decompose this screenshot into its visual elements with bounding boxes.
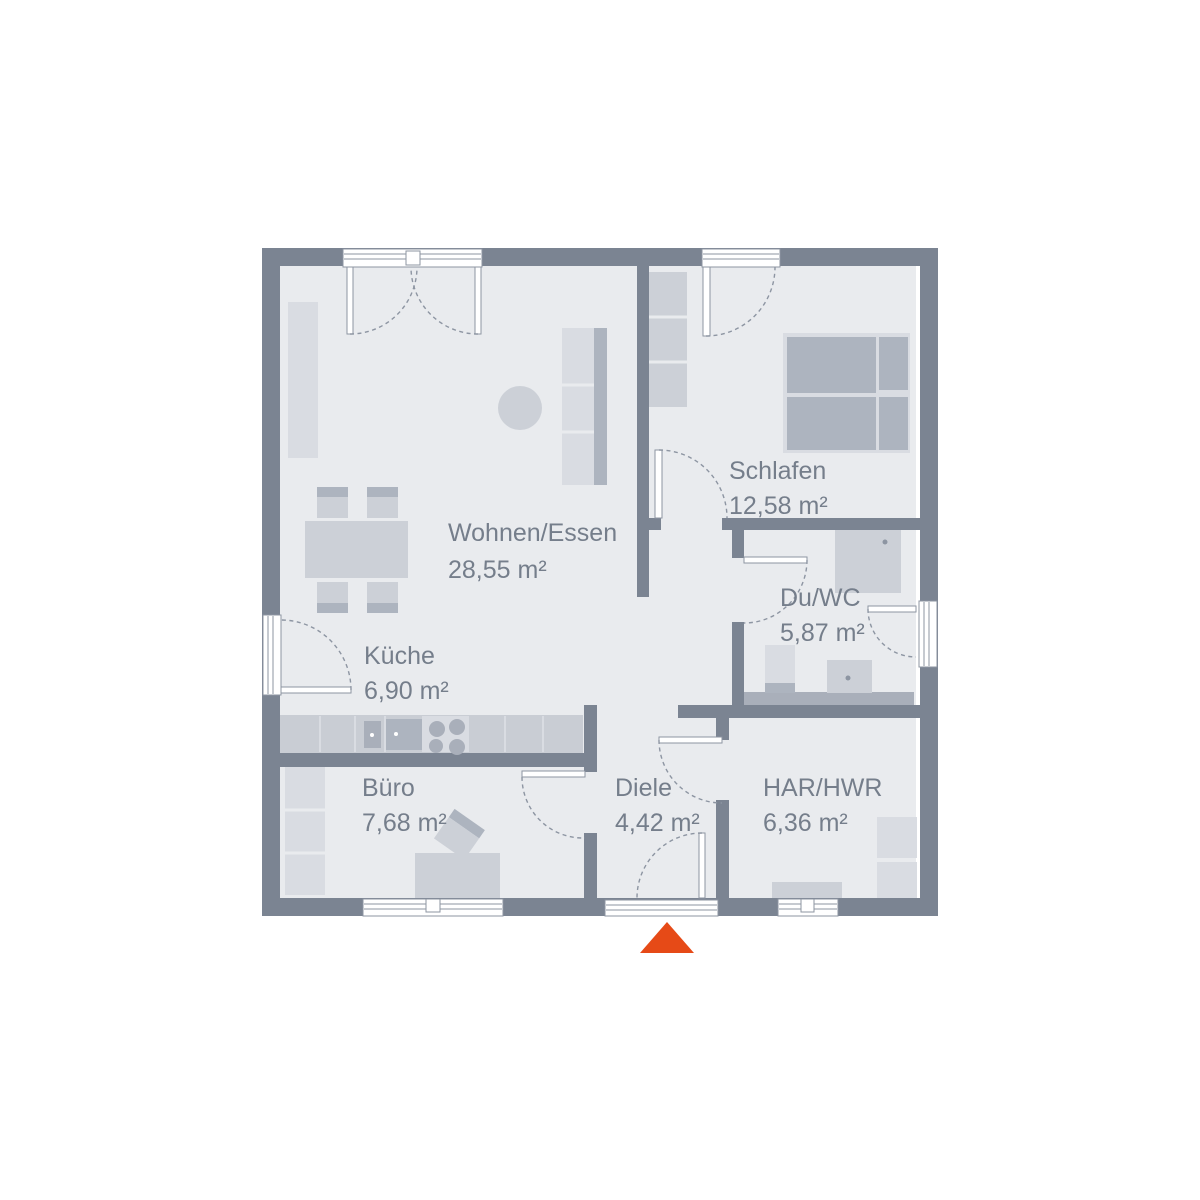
window-buero <box>363 899 503 916</box>
sofa-backrest <box>594 328 607 485</box>
wall-stub-schlafen-door <box>649 518 661 530</box>
vanity-counter <box>744 692 914 705</box>
wall-duwc-har <box>732 705 920 718</box>
wall-wohnen-schlafen <box>637 266 649 597</box>
chair <box>317 487 348 497</box>
room-area-schlafen: 12,58 m² <box>729 492 828 520</box>
door-leaf <box>347 267 353 334</box>
basin-drain <box>846 676 851 681</box>
nightstand <box>879 337 908 390</box>
appliance <box>877 817 917 858</box>
wall-diele-north <box>678 705 732 718</box>
door-handle <box>406 251 420 265</box>
furniture-kueche <box>280 715 583 755</box>
toilet <box>765 645 795 683</box>
appliance <box>877 862 917 898</box>
chair <box>367 487 398 497</box>
door-leaf <box>475 267 481 334</box>
room-label-har-hwr: HAR/HWR <box>763 774 882 802</box>
door-leaf <box>281 687 351 693</box>
burner <box>449 739 465 755</box>
burner <box>449 719 465 735</box>
desk <box>415 853 500 898</box>
kitchen-sink-basin <box>386 719 422 750</box>
room-area-wohnen-essen: 28,55 m² <box>448 556 547 584</box>
door-leaf <box>703 267 710 336</box>
room-label-buero: Büro <box>362 774 415 802</box>
floor-plan-drawing: Wohnen/Essen 28,55 m² Schlafen 12,58 m² … <box>0 0 1200 1200</box>
room-area-kueche: 6,90 m² <box>364 677 449 705</box>
wall-diele-west-lower <box>584 833 597 898</box>
room-area-diele: 4,42 m² <box>615 809 700 837</box>
window-har <box>778 899 838 916</box>
coffee-table <box>498 386 542 430</box>
bookshelf <box>285 767 325 895</box>
wall-duwc-west-upper <box>732 528 744 558</box>
toilet-tank <box>765 683 795 693</box>
utility-counter <box>772 882 842 898</box>
mattress <box>787 337 876 393</box>
room-area-buero: 7,68 m² <box>362 809 447 837</box>
room-area-duwc: 5,87 m² <box>780 619 865 647</box>
floor-plan-page: Wohnen/Essen 28,55 m² Schlafen 12,58 m² … <box>0 0 1200 1200</box>
room-label-kueche: Küche <box>364 642 435 670</box>
burner <box>429 739 443 753</box>
room-label-schlafen: Schlafen <box>729 457 826 485</box>
chair <box>317 582 348 603</box>
shower-drain <box>883 540 888 545</box>
room-area-har-hwr: 6,36 m² <box>763 809 848 837</box>
room-label-wohnen-essen: Wohnen/Essen <box>448 519 617 547</box>
wall-diele-west-upper <box>584 705 597 772</box>
wall-kueche-buero <box>280 753 597 767</box>
room-label-diele: Diele <box>615 774 672 802</box>
mattress <box>787 397 876 450</box>
door-leaf <box>699 833 705 898</box>
room-label-duwc: Du/WC <box>780 584 861 612</box>
dining-table <box>305 521 408 578</box>
window-leaf <box>868 606 916 612</box>
entrance-marker-icon <box>640 922 694 953</box>
nightstand <box>879 397 908 450</box>
wardrobe <box>649 272 687 407</box>
chair <box>367 582 398 603</box>
sideboard <box>288 302 318 458</box>
sofa <box>562 328 594 485</box>
burner <box>429 721 445 737</box>
wall-diele-east-lower <box>716 800 729 898</box>
wall-duwc-west-lower <box>732 622 744 707</box>
